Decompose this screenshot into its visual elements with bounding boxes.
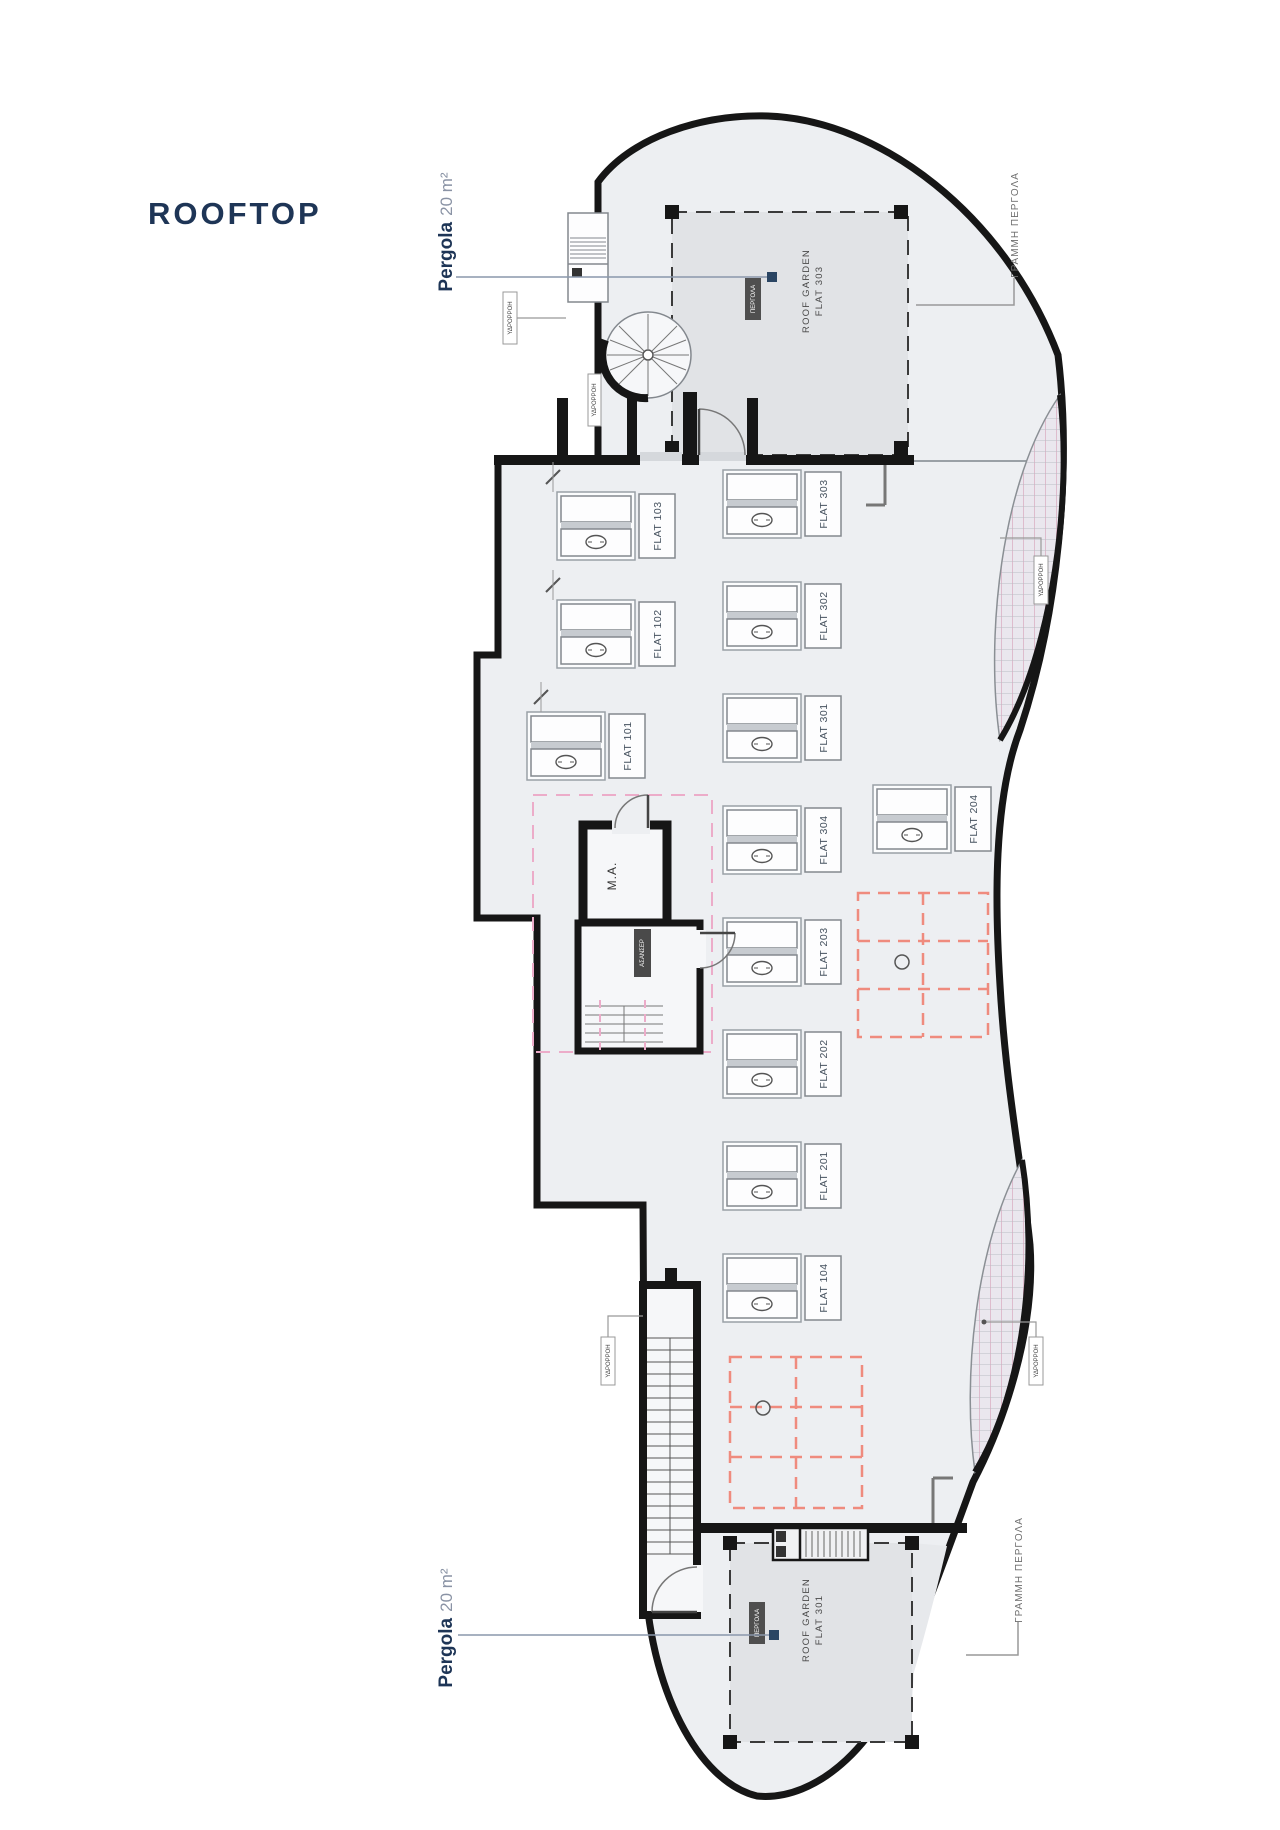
pergola-line-annotation-bottom: ΓΡΑΜΜΗ ΠΕΡΓΟΛΑ	[966, 1517, 1025, 1655]
main-staircase	[643, 1268, 703, 1615]
roof-vent-rooms	[773, 1528, 868, 1560]
pergola-post-icon	[665, 205, 679, 219]
flat-cluster-303: FLAT 303	[723, 470, 841, 538]
roof-garden-top-line2: FLAT 303	[814, 266, 825, 316]
page-title: ROOFTOP	[148, 196, 322, 231]
pergola-post-icon	[905, 1536, 919, 1550]
flat-cluster-202: FLAT 202	[723, 1030, 841, 1098]
terrace-sliver	[912, 1543, 947, 1700]
flat-cluster-302: FLAT 302	[723, 582, 841, 650]
flat-label: FLAT 204	[968, 794, 980, 843]
ac-unit-icon	[723, 1030, 801, 1098]
floorplan-page: ROOF GARDEN FLAT 303 ΠΕΡΓΟΛΑ ROOF GARDEN…	[0, 0, 1280, 1830]
roof-garden-top-line1: ROOF GARDEN	[801, 249, 812, 333]
vent-shaft-rooms	[568, 213, 608, 302]
pergola-bottom-callout-label: Pergola20 m²	[436, 1568, 457, 1687]
ac-unit-icon	[723, 918, 801, 986]
flat-label: FLAT 304	[818, 815, 830, 864]
machine-room-label: M.A.	[605, 862, 619, 891]
ac-unit-icon	[723, 806, 801, 874]
flat-cluster-201: FLAT 201	[723, 1142, 841, 1210]
roof-garden-bottom: ROOF GARDEN FLAT 301 ΠΕΡΓΟΛΑ	[723, 1536, 947, 1749]
ac-unit-icon	[557, 600, 635, 668]
ac-unit-icon	[723, 470, 801, 538]
flat-label: FLAT 101	[622, 721, 634, 770]
flat-label: FLAT 301	[818, 703, 830, 752]
pergola-post-icon	[905, 1735, 919, 1749]
pergola-post-icon	[723, 1536, 737, 1550]
flat-label: FLAT 303	[818, 479, 830, 528]
elevator-badge-label: ΑΣΑΝΣΕΡ	[640, 939, 646, 967]
flat-cluster-104: FLAT 104	[723, 1254, 841, 1322]
pergola-badge-top-label: ΠΕΡΓΟΛΑ	[751, 285, 757, 313]
pergola-post-icon	[723, 1735, 737, 1749]
pergola-post-icon	[894, 205, 908, 219]
ac-unit-icon	[873, 785, 951, 853]
flat-label: FLAT 102	[652, 609, 664, 658]
rooftop-plan-drawing: ROOF GARDEN FLAT 303 ΠΕΡΓΟΛΑ ROOF GARDEN…	[0, 0, 1280, 1830]
leader-dot-icon	[769, 1630, 779, 1640]
ac-unit-icon	[723, 582, 801, 650]
flat-label: FLAT 103	[652, 501, 664, 550]
flat-label: FLAT 202	[818, 1039, 830, 1088]
ac-unit-icon	[723, 1254, 801, 1322]
ac-unit-icon	[557, 492, 635, 560]
downspout-label: ΥΔΡΟΡΡΟΗ	[1039, 563, 1045, 596]
flat-cluster-304: FLAT 304	[723, 806, 841, 874]
roof-garden-bottom-line1: ROOF GARDEN	[801, 1578, 812, 1662]
pergola-top-callout-label: Pergola20 m²	[436, 172, 457, 291]
ac-unit-icon	[527, 712, 605, 780]
pergola-line-bottom-label: ΓΡΑΜΜΗ ΠΕΡΓΟΛΑ	[1014, 1517, 1025, 1623]
flat-cluster-103: FLAT 103	[557, 492, 675, 560]
threshold	[699, 452, 746, 461]
pergola-post-icon	[894, 441, 908, 455]
flat-cluster-203: FLAT 203	[723, 918, 841, 986]
roof-garden-bottom-line2: FLAT 301	[814, 1595, 825, 1645]
leader-dot-icon	[767, 272, 777, 282]
downspout-label: ΥΔΡΟΡΡΟΗ	[592, 383, 598, 416]
flat-cluster-204: FLAT 204	[873, 785, 991, 853]
flat-label: FLAT 104	[818, 1263, 830, 1312]
downspout-label: ΥΔΡΟΡΡΟΗ	[508, 301, 514, 334]
ac-unit-icon	[723, 1142, 801, 1210]
flat-cluster-101: FLAT 101	[527, 712, 645, 780]
flat-cluster-102: FLAT 102	[557, 600, 675, 668]
threshold	[640, 452, 682, 461]
downspout-label: ΥΔΡΟΡΡΟΗ	[606, 1344, 612, 1377]
flat-cluster-301: FLAT 301	[723, 694, 841, 762]
spiral-center-icon	[643, 350, 653, 360]
roof-garden-top: ROOF GARDEN FLAT 303 ΠΕΡΓΟΛΑ	[665, 205, 908, 455]
downspout-label: ΥΔΡΟΡΡΟΗ	[1034, 1344, 1040, 1377]
pergola-badge-bottom-label: ΠΕΡΓΟΛΑ	[755, 1609, 761, 1637]
pergola-line-top-label: ΓΡΑΜΜΗ ΠΕΡΓΟΛΑ	[1010, 172, 1021, 278]
flat-label: FLAT 201	[818, 1151, 830, 1200]
flat-label: FLAT 302	[818, 591, 830, 640]
ac-unit-icon	[723, 694, 801, 762]
flat-label: FLAT 203	[818, 927, 830, 976]
